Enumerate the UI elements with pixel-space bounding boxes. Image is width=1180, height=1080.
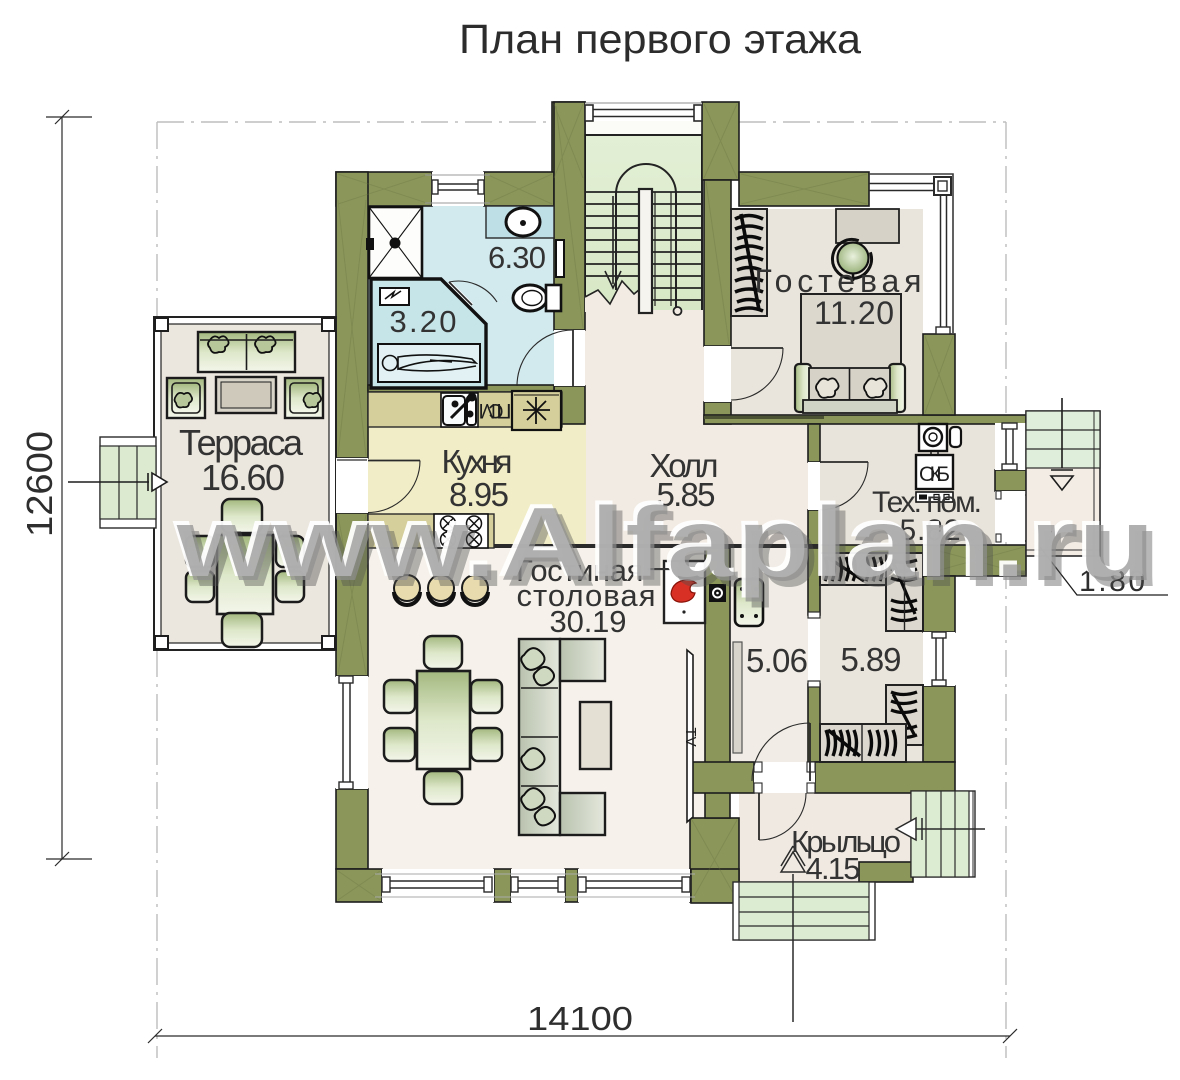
svg-text:30.19: 30.19: [550, 604, 627, 639]
svg-text:www.Alfaplan.ru: www.Alfaplan.ru: [176, 487, 1155, 603]
svg-text:14100: 14100: [527, 1000, 633, 1037]
svg-text:ПСМ: ПСМ: [479, 399, 512, 422]
svg-text:Гостевая: Гостевая: [755, 263, 922, 299]
svg-text:3.20: 3.20: [390, 304, 457, 339]
svg-text:План первого этажа: План первого этажа: [459, 16, 861, 62]
svg-text:12600: 12600: [19, 431, 60, 537]
svg-text:5.06: 5.06: [746, 642, 808, 679]
svg-text:Кухня: Кухня: [442, 443, 513, 480]
svg-text:4.15: 4.15: [806, 851, 861, 886]
svg-text:TV: TV: [682, 727, 699, 746]
svg-text:11.20: 11.20: [814, 295, 894, 331]
svg-text:5.89: 5.89: [841, 641, 902, 678]
svg-text:6.30: 6.30: [488, 240, 546, 275]
